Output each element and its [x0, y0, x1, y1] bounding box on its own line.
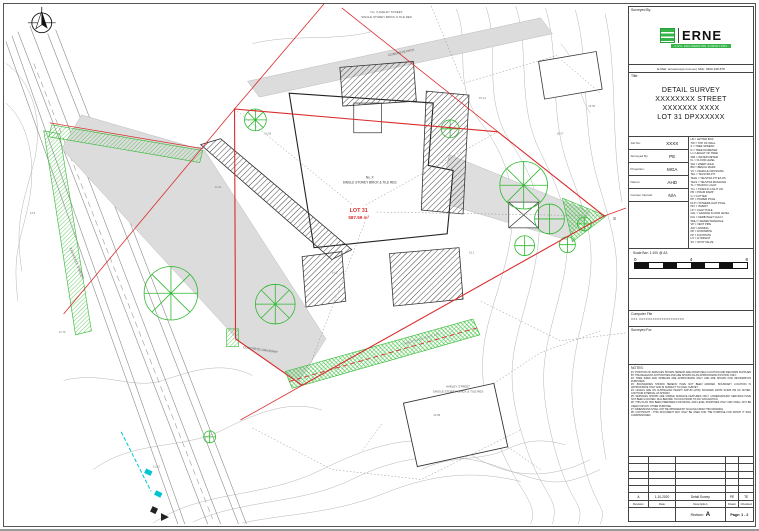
- drawing-title: DETAIL SURVEY XXXXXXXX STREET XXXXXXX XX…: [629, 86, 753, 122]
- revision-footer: Revision: A Page: 1 - 2: [629, 508, 753, 521]
- info-row-contour-interval: Contour Interval: N/A: [629, 189, 688, 202]
- logo-divider: [678, 28, 679, 43]
- computer-file-value: XXX XXXXXXXXXXXXXXXXXXXX: [629, 316, 753, 322]
- current-revision: A: [706, 512, 710, 518]
- title-line: XXXXXXX XXXX: [629, 104, 753, 113]
- lot-area-label: 587.59 m²: [348, 215, 369, 220]
- legend-list: LB = LETTER BOX TW = TOP OF WALL S = TRE…: [689, 137, 753, 248]
- tree-icon: [204, 431, 216, 443]
- svg-text:11.82: 11.82: [153, 465, 160, 469]
- info-row-job-no: Job No: XXXX: [629, 137, 688, 150]
- svg-text:14.38: 14.38: [198, 146, 205, 150]
- building-no-label: No. X: [366, 175, 375, 179]
- title-line: LOT 31 DPXXXXXX: [629, 113, 753, 122]
- svg-text:14.6: 14.6: [332, 270, 338, 274]
- revision-empty-row: [629, 486, 753, 493]
- drawing-area: LOT 31 587.59 m² No. X SINGLE STOREY BRI…: [4, 4, 628, 526]
- title-line: XXXXXXXX STREET: [629, 95, 753, 104]
- bottom-neighbour-label-1: AVELEY STREET: [446, 384, 470, 388]
- svg-text:16.07: 16.07: [556, 132, 563, 136]
- title-label: Title:: [629, 73, 753, 78]
- tree-icon: [244, 109, 266, 131]
- revision-empty-row: [629, 472, 753, 479]
- tree-icon: [255, 284, 295, 324]
- revision-row-a: A 1-10-2020 Detail Survey PE TE: [629, 493, 753, 500]
- svg-text:10.98: 10.98: [433, 413, 440, 417]
- top-neighbour-label-2: SINGLE STOREY BRICK & TILE RES: [361, 15, 412, 19]
- surveyed-for-section: Surveyed For:: [629, 327, 753, 365]
- info-row-datum: Datum: AHD: [629, 176, 688, 189]
- surveyed-for-label: Surveyed For:: [629, 327, 753, 332]
- title-block: Surveyed By: ERNE CIVIL ENGINEERING SURV…: [628, 6, 754, 522]
- north-arrow-icon: [28, 7, 56, 33]
- erne-brand-text: ERNE: [682, 29, 722, 42]
- survey-plan-svg: LOT 31 587.59 m² No. X SINGLE STOREY BRI…: [4, 4, 628, 526]
- tree-icon: [144, 266, 198, 319]
- erne-logo-icon: [660, 28, 675, 43]
- erne-logo: ERNE CIVIL ENGINEERING SURVEYORS: [629, 12, 753, 64]
- revision-footer-label: Revision:: [691, 513, 704, 517]
- scale-bar: [634, 262, 748, 269]
- lot-name-label: LOT 31: [350, 208, 368, 214]
- tree-icon: [441, 120, 459, 138]
- svg-text:13.9: 13.9: [30, 211, 36, 215]
- building-desc-label: SINGLE STOREY BRICK & TILE RES: [343, 180, 397, 184]
- svg-text:14.21: 14.21: [215, 185, 222, 189]
- revision-empty-row: [629, 457, 753, 464]
- info-row-surveyed-by: Surveyed By: PE: [629, 150, 688, 163]
- tree-icon: [500, 161, 548, 209]
- revision-empty-row: [629, 479, 753, 486]
- erne-tagline: CIVIL ENGINEERING SURVEYORS: [671, 44, 730, 48]
- job-info-section: Job No: XXXX Surveyed By: PE Projection:…: [629, 137, 753, 249]
- svg-text:13.96: 13.96: [264, 132, 271, 136]
- tree-icon: [535, 204, 565, 234]
- revision-table: A 1-10-2020 Detail Survey PE TE Revision…: [629, 457, 753, 521]
- computer-file-section: Computer File XXX XXXXXXXXXXXXXXXXXXXX: [629, 311, 753, 327]
- svg-text:15.1: 15.1: [469, 251, 475, 255]
- notes-body: #1: POSITION OF SERVICES SHOWN HEREON AR…: [629, 370, 753, 418]
- page-number: Page: 1 - 2: [726, 508, 753, 521]
- corner-s-label: S: [613, 216, 616, 221]
- top-neighbour-label-1: No. X AVELEY STREET: [371, 10, 403, 14]
- job-info-table: Job No: XXXX Surveyed By: PE Projection:…: [629, 137, 689, 248]
- svg-text:16.55: 16.55: [588, 104, 595, 108]
- contact-line: E-Mail: ernesurveys.com.au | Mob: 0400 2…: [629, 64, 753, 72]
- revision-empty-row: [629, 464, 753, 471]
- scale-bar-section: Scale Bar: 1:100 @ A3 0 4 8: [629, 249, 753, 279]
- title-line: DETAIL SURVEY: [629, 86, 753, 95]
- svg-text:15.12: 15.12: [479, 96, 486, 100]
- notes-section: NOTES: #1: POSITION OF SERVICES SHOWN HE…: [629, 365, 753, 457]
- title-section: Title: DETAIL SURVEY XXXXXXXX STREET XXX…: [629, 73, 753, 137]
- survey-sheet: LOT 31 587.59 m² No. X SINGLE STOREY BRI…: [0, 0, 759, 531]
- bottom-neighbour-label-2: SINGLE STOREY BRICK & TILE RES: [433, 389, 484, 393]
- revision-header-row: Revision Date Description Drawn Checked: [629, 501, 753, 508]
- tree-icon: [515, 236, 535, 256]
- svg-text:12.75: 12.75: [59, 330, 66, 334]
- info-row-projection: Projection: MGA: [629, 163, 688, 176]
- blank-section: [629, 279, 753, 311]
- scale-bar-label: Scale Bar: 1:100 @ A3: [631, 250, 751, 255]
- surveyed-by-section: Surveyed By: ERNE CIVIL ENGINEERING SURV…: [629, 7, 753, 73]
